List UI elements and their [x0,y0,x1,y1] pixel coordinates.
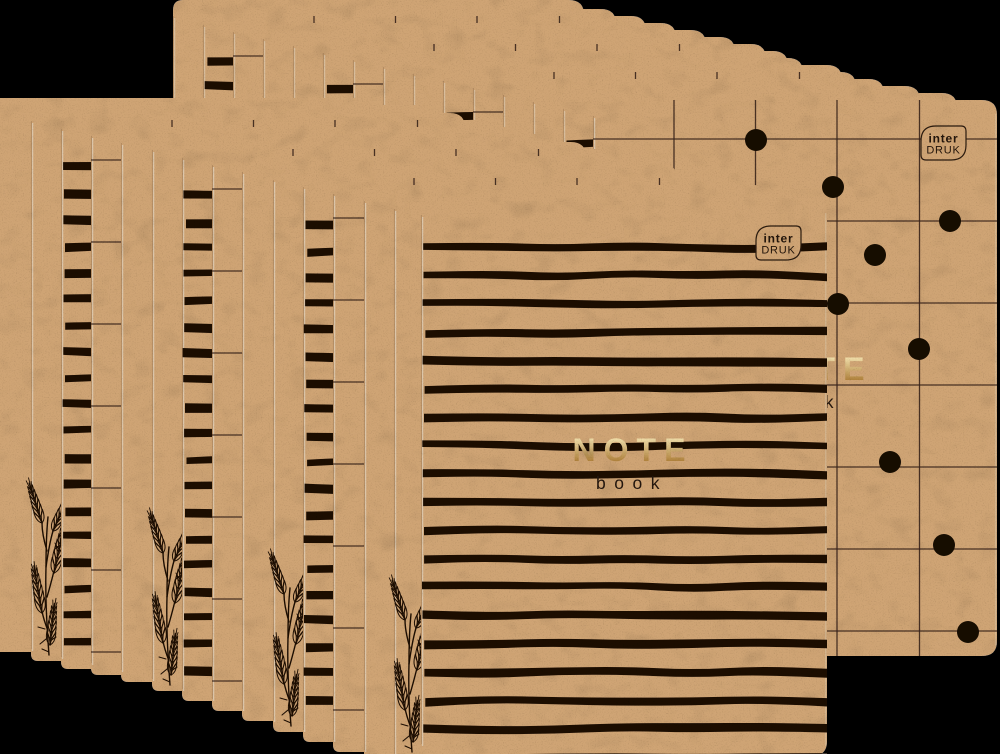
svg-text:DRUK: DRUK [761,245,795,257]
svg-text:book: book [596,473,668,493]
svg-text:NOTE: NOTE [573,432,694,468]
svg-text:inter: inter [763,232,793,246]
svg-text:inter: inter [928,132,958,146]
svg-text:DRUK: DRUK [926,145,960,157]
